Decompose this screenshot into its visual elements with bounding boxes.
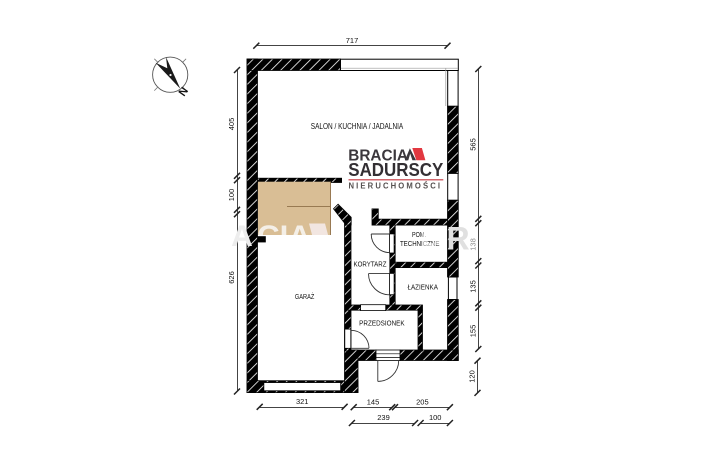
svg-text:205: 205 [416,397,429,406]
svg-text:138: 138 [468,238,477,251]
svg-text:100: 100 [429,413,442,422]
svg-text:SADURSCY: SADURSCY [348,159,444,180]
svg-text:155: 155 [468,325,477,338]
svg-text:120: 120 [468,370,477,383]
svg-text:135: 135 [468,280,477,293]
svg-text:A: A [231,220,253,253]
svg-text:321: 321 [296,397,309,406]
svg-text:100: 100 [227,189,236,202]
svg-text:N: N [175,84,189,97]
svg-text:SALON / KUCHNIA / JADALNIA: SALON / KUCHNIA / JADALNIA [311,122,404,131]
svg-text:626: 626 [227,271,236,284]
svg-text:565: 565 [468,138,477,151]
svg-text:717: 717 [346,36,359,45]
svg-text:ŁAZIENKA: ŁAZIENKA [407,283,438,292]
svg-text:KORYTARZ: KORYTARZ [354,260,387,269]
svg-text:GARAŻ: GARAŻ [295,292,315,301]
svg-text:PRZEDSIONEK: PRZEDSIONEK [359,319,405,328]
svg-text:N I E R U C H O M O Ś C I: N I E R U C H O M O Ś C I [349,181,441,190]
svg-text:405: 405 [227,118,236,131]
svg-text:239: 239 [377,413,390,422]
svg-text:R: R [447,221,470,257]
svg-text:145: 145 [367,397,380,406]
svg-text:B: B [420,220,442,253]
